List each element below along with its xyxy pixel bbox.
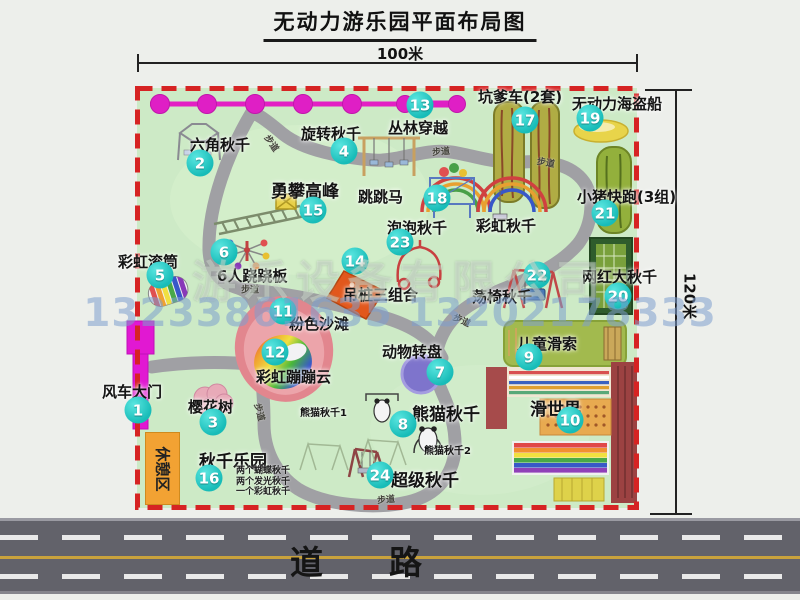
- badge-19: 19: [577, 105, 604, 132]
- badge-17: 17: [512, 107, 539, 134]
- label-panda-swing-2: 熊猫秋千2: [424, 442, 471, 457]
- label-piglet-run: 小猪快跑(3组): [577, 186, 676, 207]
- path-label: 步道: [376, 492, 395, 507]
- label-panda-swing-1: 熊猫秋千1: [300, 404, 347, 419]
- playground-map-page: 无动力游乐园平面布局图 100米 120米 休憩区 风车大门 六角秋千 樱花树 …: [0, 0, 800, 600]
- badge-23: 23: [387, 229, 414, 256]
- label-pit-car: 坑爹车(2套): [478, 86, 562, 107]
- badge-12: 12: [262, 339, 289, 366]
- label-hanging-post-combo: 吊桩三组合: [343, 284, 418, 305]
- label-panda-swing: 熊猫秋千: [412, 400, 480, 425]
- page-title: 无动力游乐园平面布局图: [264, 6, 537, 42]
- badge-4: 4: [331, 138, 358, 165]
- badge-7: 7: [427, 359, 454, 386]
- badge-22: 22: [524, 262, 551, 289]
- label-jungle-crossing: 丛林穿越: [388, 117, 448, 138]
- label-jumping-horse: 跳跳马: [358, 186, 403, 207]
- badge-3: 3: [200, 409, 227, 436]
- badge-1: 1: [125, 397, 152, 424]
- badge-8: 8: [390, 411, 417, 438]
- badge-11: 11: [270, 298, 297, 325]
- badge-14: 14: [342, 248, 369, 275]
- path-label: 步道: [241, 283, 259, 296]
- badge-9: 9: [516, 344, 543, 371]
- height-dimension-label: 120米: [680, 273, 701, 319]
- badge-2: 2: [187, 150, 214, 177]
- road-label: 道 路: [290, 536, 422, 584]
- label-rainbow-swing: 彩虹秋千: [476, 215, 536, 236]
- path-label: 步道: [431, 144, 450, 159]
- swing-park-note-line: 一个彩虹秋千: [236, 487, 290, 498]
- badge-13: 13: [407, 92, 434, 119]
- width-dimension-label: 100米: [377, 43, 423, 64]
- badge-5: 5: [147, 262, 174, 289]
- label-animal-turntable: 动物转盘: [382, 341, 442, 362]
- label-pink-beach: 粉色沙滩: [289, 313, 349, 334]
- badge-20: 20: [605, 283, 632, 310]
- badge-16: 16: [196, 465, 223, 492]
- rest-area: 休憩区: [145, 432, 180, 505]
- badge-10: 10: [557, 407, 584, 434]
- swing-park-note-line: 两个蝴蝶秋千: [236, 466, 290, 477]
- badge-18: 18: [424, 185, 451, 212]
- label-rainbow-cloud: 彩虹蹦蹦云: [256, 366, 331, 387]
- label-swing-chair: 荡椅秋千: [472, 286, 532, 307]
- badge-21: 21: [592, 200, 619, 227]
- badge-15: 15: [300, 197, 327, 224]
- swing-park-note-line: 两个发光秋千: [236, 477, 290, 488]
- label-super-swing: 超级秋千: [391, 466, 459, 491]
- rest-area-label: 休憩区: [152, 446, 173, 491]
- swing-park-notes: 两个蝴蝶秋千 两个发光秋千 一个彩虹秋千: [236, 466, 290, 498]
- badge-24: 24: [367, 462, 394, 489]
- badge-6: 6: [211, 239, 238, 266]
